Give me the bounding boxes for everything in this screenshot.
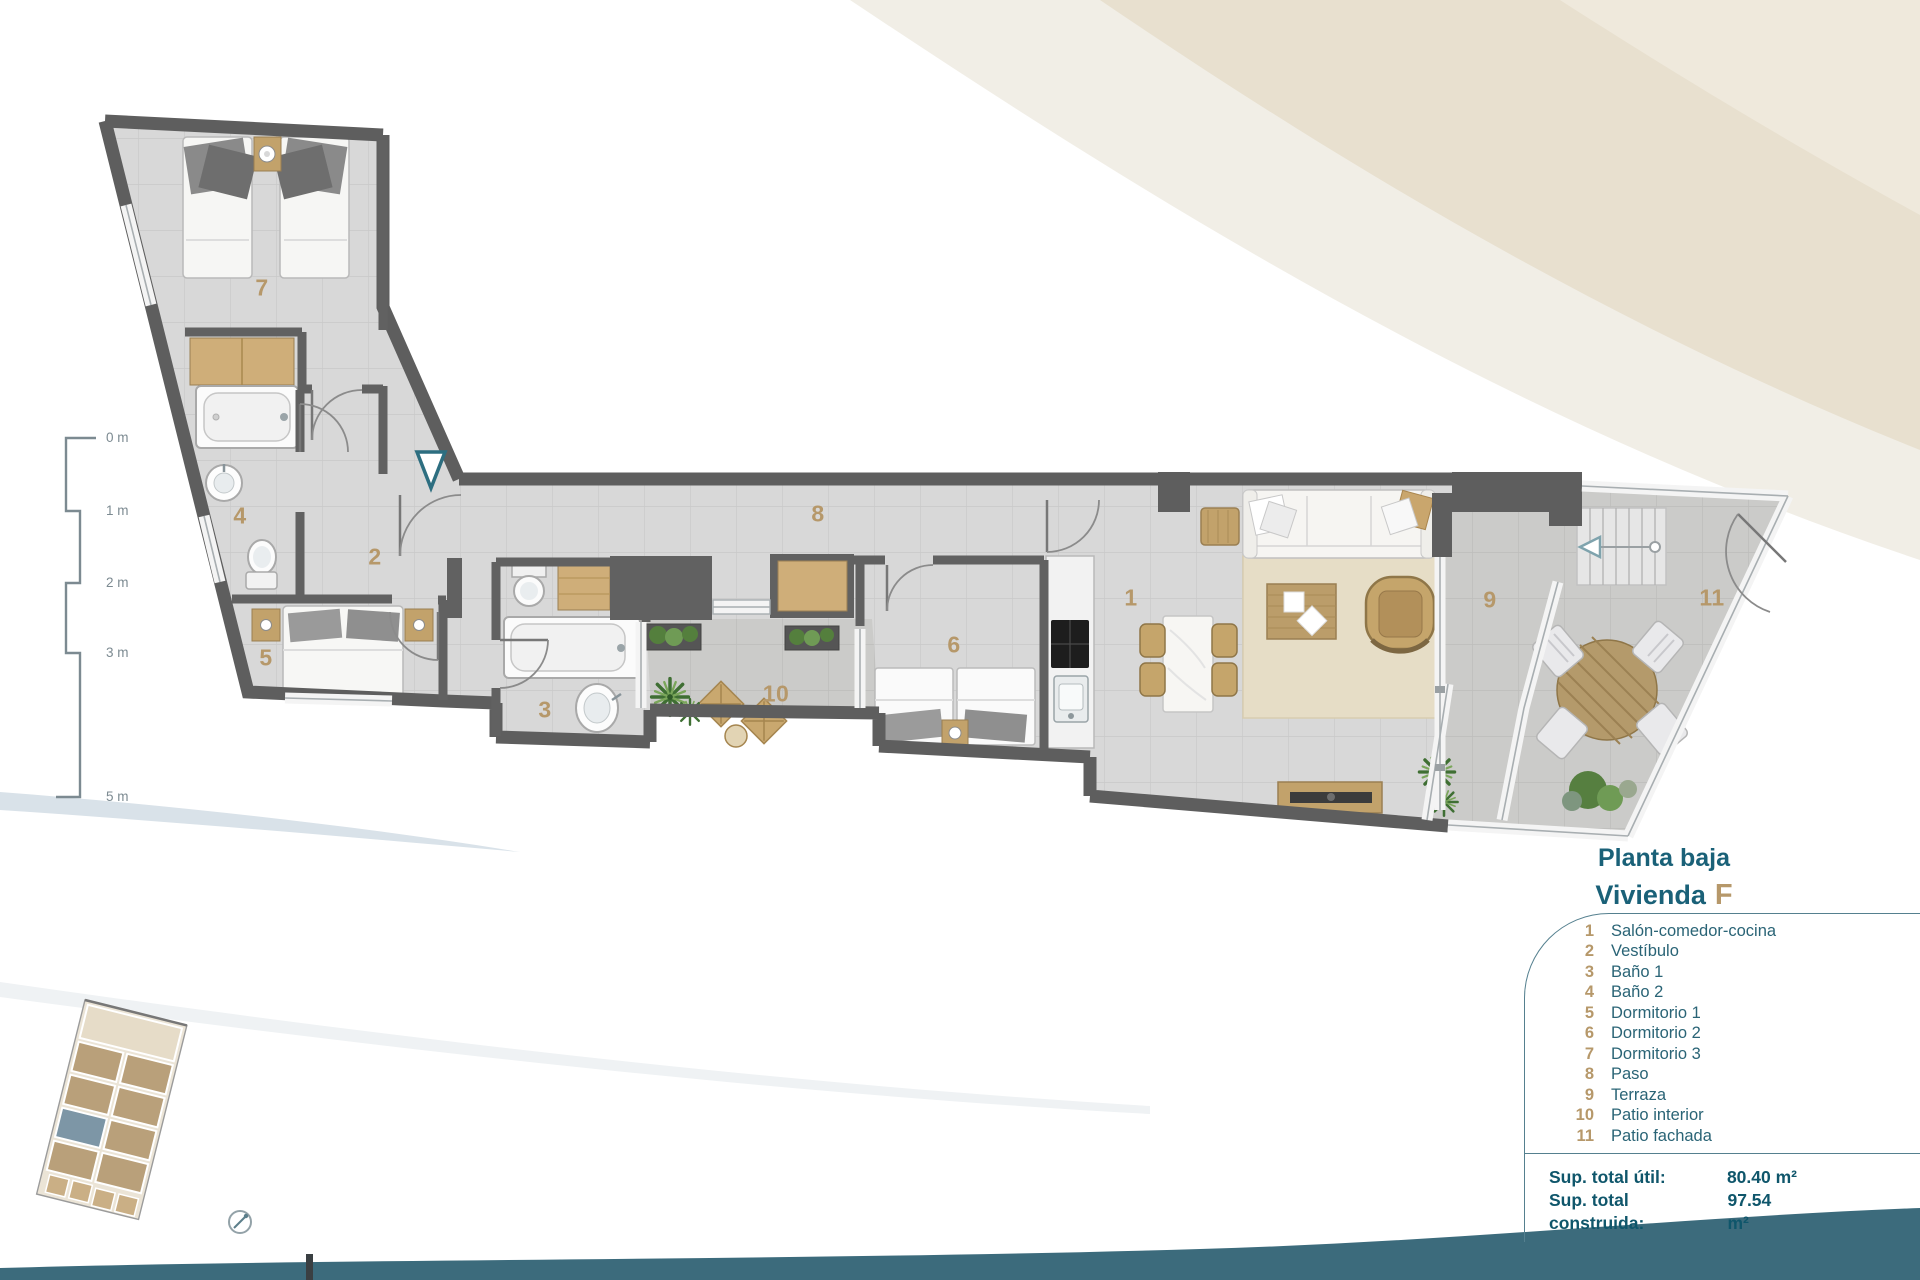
legend-row: 9Terraza — [1524, 1085, 1904, 1105]
compass-icon — [229, 1211, 251, 1233]
room-label-11: 11 — [1699, 585, 1724, 612]
legend-row: 6Dormitorio 2 — [1524, 1023, 1904, 1043]
floor-name: Planta baja — [1504, 843, 1824, 874]
brochure-page: 1 2 3 4 5 6 7 8 9 10 11 0 m 1 m 2 m 3 m … — [0, 0, 1920, 1280]
legend-row: 5Dormitorio 1 — [1524, 1003, 1904, 1023]
scale-label-1m: 1 m — [106, 503, 129, 518]
room-label-6: 6 — [947, 632, 960, 659]
scale-label-0m: 0 m — [106, 430, 129, 445]
total-util: Sup. total útil: 80.40 m² — [1549, 1166, 1797, 1189]
scale-bar — [56, 438, 96, 797]
room-label-9: 9 — [1483, 587, 1496, 614]
total-built: Sup. total construida: 97.54 m² — [1549, 1189, 1797, 1235]
room-label-7: 7 — [255, 275, 268, 302]
room-label-5: 5 — [259, 645, 272, 672]
room-label-1: 1 — [1124, 585, 1137, 612]
legend-row: 8Paso — [1524, 1064, 1904, 1084]
scale-label-5m: 5 m — [106, 789, 129, 804]
total-util-value: 80.40 m² — [1727, 1166, 1797, 1189]
plan-title: Planta baja ViviendaF — [1504, 843, 1824, 914]
legend-row: 2Vestíbulo — [1524, 941, 1904, 961]
legend-divider — [1524, 1153, 1920, 1154]
legend-row: 7Dormitorio 3 — [1524, 1044, 1904, 1064]
room-label-8: 8 — [811, 501, 824, 528]
scale-label-3m: 3 m — [106, 645, 129, 660]
unit-letter: F — [1715, 879, 1733, 911]
legend-list: 1Salón-comedor-cocina 2Vestíbulo 3Baño 1… — [1524, 921, 1904, 1146]
legend-row: 3Baño 1 — [1524, 962, 1904, 982]
cropped-footer-mark — [306, 1254, 313, 1280]
room-label-2: 2 — [368, 544, 381, 571]
stairs — [1577, 508, 1666, 585]
site-mini-map — [37, 1000, 187, 1219]
room-label-4: 4 — [233, 503, 246, 530]
legend-row: 10Patio interior — [1524, 1105, 1904, 1125]
legend-row: 1Salón-comedor-cocina — [1524, 921, 1904, 941]
kitchen-counter — [1046, 556, 1094, 748]
total-built-value: 97.54 m² — [1727, 1189, 1797, 1235]
scale-label-2m: 2 m — [106, 575, 129, 590]
room-label-10: 10 — [763, 681, 790, 708]
legend-row: 11Patio fachada — [1524, 1126, 1904, 1146]
surface-totals: Sup. total útil: 80.40 m² Sup. total con… — [1549, 1166, 1797, 1235]
room-label-3: 3 — [538, 697, 551, 724]
unit-name: ViviendaF — [1504, 877, 1824, 913]
legend-row: 4Baño 2 — [1524, 982, 1904, 1002]
